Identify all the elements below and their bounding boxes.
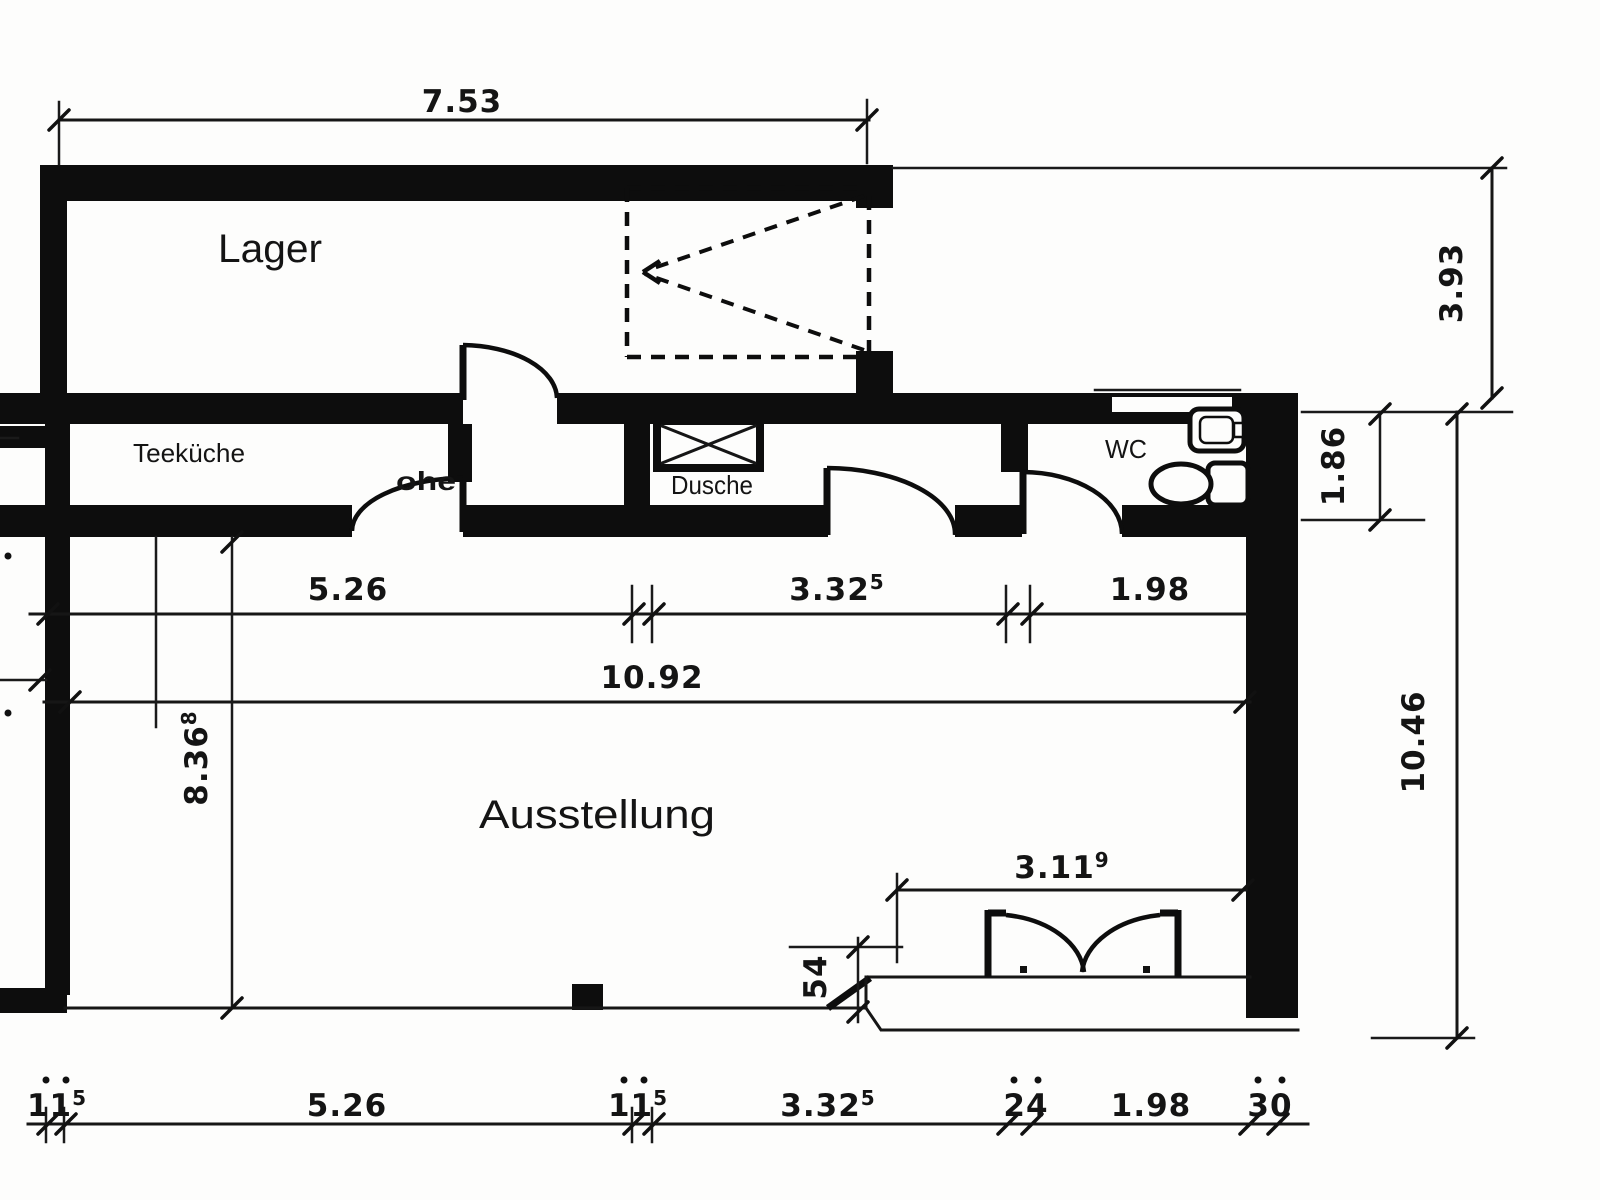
washbasin-inner xyxy=(1200,417,1233,443)
dim-room-height: 8.368 xyxy=(177,710,215,805)
wall-gate-pier-bottom xyxy=(856,351,893,398)
dim-entrance-width: 3.119 xyxy=(1014,848,1109,886)
dim-bottom-7: 30 xyxy=(1247,1088,1292,1124)
dim-step: 54 xyxy=(798,954,834,999)
wall-ausstellung-north-3 xyxy=(955,505,1022,537)
platform-outline xyxy=(866,1008,1298,1030)
dim-row-a-3: 1.98 xyxy=(1110,572,1191,608)
entrance-stop-dot-left xyxy=(1020,966,1027,973)
wall-ausstellung-north-2 xyxy=(463,505,828,537)
dim-row-a-1: 5.26 xyxy=(308,572,389,608)
dim-bottom-1: 115 xyxy=(27,1086,87,1124)
dim-bottom-2: 5.26 xyxy=(307,1088,388,1124)
room-label-teekueche: Teeküche xyxy=(133,438,245,468)
room-label-wc: WC xyxy=(1105,434,1147,464)
wall-ausstellung-north-4 xyxy=(1122,505,1256,537)
room-label-ausstellung: Ausstellung xyxy=(479,793,715,837)
entrance-ramp-hatch xyxy=(828,978,870,1008)
toilet-tank xyxy=(1208,463,1248,505)
lager-door-arc xyxy=(463,345,557,398)
room-label-lager: Lager xyxy=(218,227,322,271)
wall-dusche-west xyxy=(624,424,650,509)
dim-right-total: 10.46 xyxy=(1396,690,1432,793)
dim-bottom-6: 1.98 xyxy=(1111,1088,1192,1124)
floor-plan-drawing: 7.53 3.93 1.86 10.46 5.26 3.325 1.98 10.… xyxy=(0,0,1600,1200)
dimension-dots xyxy=(43,1077,1286,1084)
dim-bottom-5: 24 xyxy=(1003,1088,1048,1124)
dim-row-total: 10.92 xyxy=(600,660,703,696)
hall-door-arc xyxy=(827,468,955,535)
room-label-dusche: Dusche xyxy=(671,470,753,500)
dim-strip-height: 1.86 xyxy=(1316,426,1352,507)
room-label-fragment: ohe xyxy=(396,466,456,496)
wall-southwest xyxy=(0,988,67,1013)
wall-east xyxy=(1246,393,1298,1018)
lager-gate-symbol xyxy=(627,188,869,357)
entrance-left-arc xyxy=(1006,915,1084,972)
entrance-right-arc xyxy=(1082,915,1160,972)
wall-gate-pier-top xyxy=(856,165,893,208)
dim-bottom-4: 3.325 xyxy=(780,1086,875,1124)
wall-lager-north xyxy=(40,165,892,201)
dim-row-a-2: 3.325 xyxy=(789,570,884,608)
entrance-platform xyxy=(65,977,1298,1030)
wall-lager-west xyxy=(40,165,67,400)
toilet-bowl xyxy=(1151,464,1211,504)
washbasin-tap xyxy=(1234,423,1243,437)
wall-ausstellung-north-1 xyxy=(0,505,352,537)
dim-top-width: 7.53 xyxy=(422,84,503,120)
dim-right-depth: 3.93 xyxy=(1434,243,1470,324)
entrance-stop-dot-right xyxy=(1143,966,1150,973)
floor-plan-page: 7.53 3.93 1.86 10.46 5.26 3.325 1.98 10.… xyxy=(0,0,1600,1200)
wc-door-arc xyxy=(1023,472,1122,534)
wall-wc-west xyxy=(1001,424,1028,472)
column xyxy=(572,984,603,1010)
